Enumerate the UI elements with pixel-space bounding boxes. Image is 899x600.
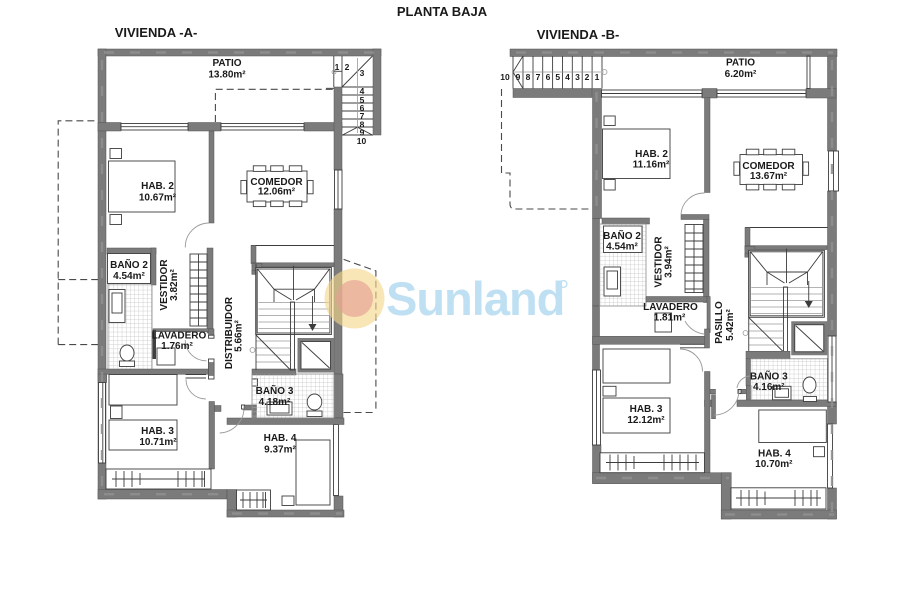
svg-text:9: 9 <box>516 72 521 82</box>
svg-text:HAB. 3: HAB. 3 <box>630 404 663 415</box>
svg-text:VIVIENDA -A-: VIVIENDA -A- <box>115 25 198 40</box>
svg-text:10.71m²: 10.71m² <box>139 437 177 448</box>
svg-text:5.66m²: 5.66m² <box>234 319 245 351</box>
svg-text:3.94m²: 3.94m² <box>664 245 675 277</box>
svg-text:5.42m²: 5.42m² <box>725 308 736 340</box>
svg-text:BAÑO 3: BAÑO 3 <box>750 370 788 383</box>
svg-text:Sunland: Sunland <box>386 272 564 325</box>
svg-text:1: 1 <box>335 62 340 72</box>
svg-text:BAÑO 2: BAÑO 2 <box>603 229 641 242</box>
svg-text:PLANTA BAJA: PLANTA BAJA <box>397 4 488 19</box>
svg-text:6: 6 <box>546 72 551 82</box>
svg-text:9.37m²: 9.37m² <box>264 445 296 456</box>
svg-text:8: 8 <box>526 72 531 82</box>
svg-text:3: 3 <box>575 72 580 82</box>
svg-text:1.76m²: 1.76m² <box>161 341 193 352</box>
svg-text:7: 7 <box>536 72 541 82</box>
svg-text:6.20m²: 6.20m² <box>725 69 757 80</box>
svg-text:VIVIENDA -B-: VIVIENDA -B- <box>537 27 620 42</box>
svg-text:4.54m²: 4.54m² <box>113 271 145 282</box>
svg-text:10.67m²: 10.67m² <box>139 193 177 204</box>
svg-text:4.16m²: 4.16m² <box>753 382 785 393</box>
svg-text:1.81m²: 1.81m² <box>654 313 686 324</box>
svg-text:4: 4 <box>565 72 570 82</box>
svg-text:10: 10 <box>357 136 367 146</box>
svg-text:LAVADERO: LAVADERO <box>152 331 207 342</box>
svg-text:12.06m²: 12.06m² <box>258 187 296 198</box>
svg-text:13.67m²: 13.67m² <box>750 171 788 182</box>
svg-text:2: 2 <box>585 72 590 82</box>
svg-text:LAVADERO: LAVADERO <box>643 302 698 313</box>
svg-text:3: 3 <box>360 68 365 78</box>
svg-text:HAB. 2: HAB. 2 <box>635 149 668 160</box>
svg-text:HAB. 4: HAB. 4 <box>264 433 297 444</box>
svg-text:10: 10 <box>500 72 510 82</box>
svg-text:13.80m²: 13.80m² <box>208 70 246 81</box>
svg-text:HAB. 3: HAB. 3 <box>141 426 174 437</box>
svg-text:1: 1 <box>595 72 600 82</box>
svg-text:3.82m²: 3.82m² <box>169 268 180 300</box>
svg-text:5: 5 <box>555 72 560 82</box>
svg-text:BAÑO 2: BAÑO 2 <box>110 258 148 271</box>
svg-text:PATIO: PATIO <box>726 58 755 69</box>
svg-text:4.54m²: 4.54m² <box>606 242 638 253</box>
svg-text:2: 2 <box>345 62 350 72</box>
svg-text:BAÑO 3: BAÑO 3 <box>256 384 294 397</box>
svg-text:12.12m²: 12.12m² <box>627 415 665 426</box>
svg-text:10.70m²: 10.70m² <box>755 459 793 470</box>
svg-text:4.18m²: 4.18m² <box>259 397 291 408</box>
svg-text:HAB. 2: HAB. 2 <box>141 181 174 192</box>
svg-text:11.16m²: 11.16m² <box>633 160 670 171</box>
svg-text:HAB. 4: HAB. 4 <box>758 449 791 460</box>
svg-text:PASILLO: PASILLO <box>714 301 725 344</box>
svg-text:PATIO: PATIO <box>212 58 241 69</box>
